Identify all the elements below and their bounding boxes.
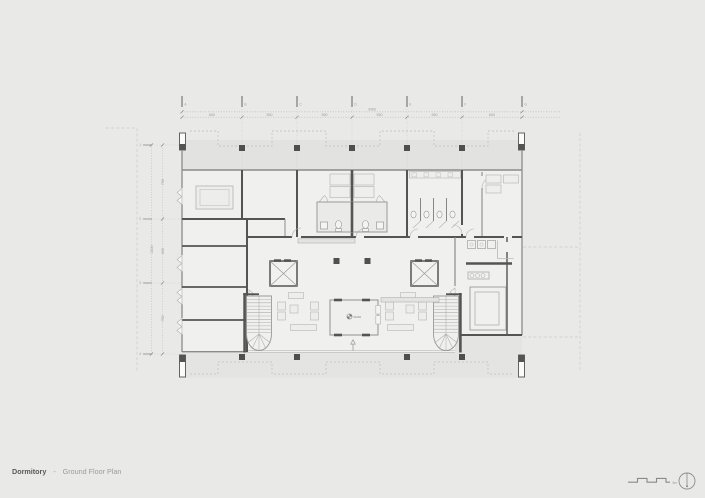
dim-left-segment: 750 xyxy=(161,179,165,185)
right-wing-terrace xyxy=(455,335,522,352)
dim-top-segment: 550 xyxy=(322,113,328,117)
grid-row-label: 1 xyxy=(139,143,141,147)
title-divider: - xyxy=(53,467,56,476)
grid-row-label: 2 xyxy=(139,217,141,221)
scale-label: 5m xyxy=(673,481,678,485)
level-marker-label: ±0.00 xyxy=(353,315,361,319)
floor-plan-drawing: A B C D E F G 1 2 3 4 3400 600 5 xyxy=(0,0,705,498)
dim-top-segment: 550 xyxy=(432,113,438,117)
dim-left-segment: 600 xyxy=(161,248,165,254)
grid-column-label: F xyxy=(464,103,466,107)
lower-terrace xyxy=(182,352,522,378)
corridor-counter xyxy=(298,239,355,243)
room-furniture-top-left xyxy=(196,186,233,209)
dim-top-total: 3400 xyxy=(368,107,376,111)
title-project: Dormitory xyxy=(12,467,46,476)
grid-column-label: E xyxy=(409,103,411,107)
lobby-bench xyxy=(381,298,439,302)
dim-top-segment: 550 xyxy=(377,113,383,117)
grid-column-label: B xyxy=(244,103,246,107)
dim-left-total: 2100 xyxy=(150,246,154,254)
grid-row-label: 3 xyxy=(139,281,141,285)
grid-row-label: 4 xyxy=(139,352,141,356)
title-view: Ground Floor Plan xyxy=(63,467,122,476)
elevator-left xyxy=(270,259,297,286)
upper-terrace xyxy=(182,140,522,170)
dim-top-segment: 600 xyxy=(209,113,215,117)
dim-top-segment: 550 xyxy=(267,113,273,117)
elevator-right xyxy=(411,259,438,286)
dim-left-segment: 750 xyxy=(161,316,165,322)
dim-top-segment: 600 xyxy=(489,113,495,117)
entrance-vestibule: ±0.00 xyxy=(330,299,381,337)
